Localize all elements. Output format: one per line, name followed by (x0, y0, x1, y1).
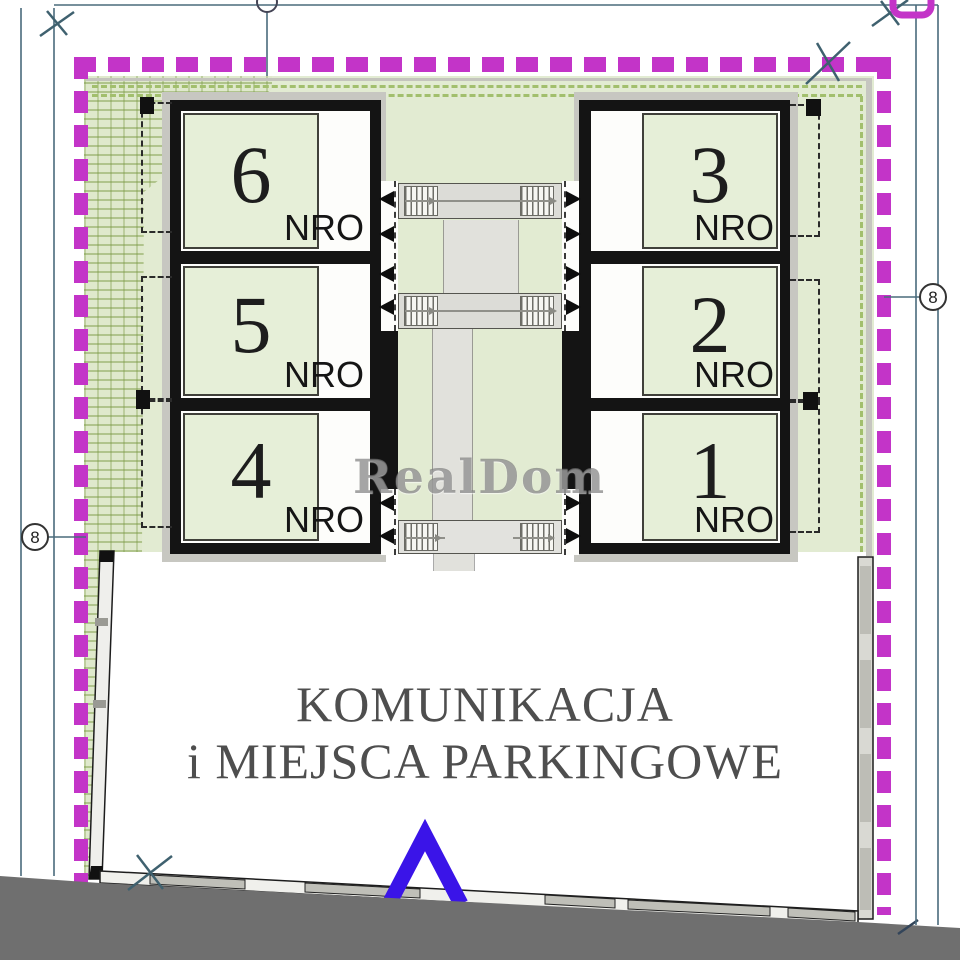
axis-bubble-label: 8 (928, 288, 937, 307)
axis-bubble-label: 8 (30, 528, 39, 547)
survey-marker-circle (257, 0, 277, 12)
site-plan: 6 NRO 5 NRO 4 NRO 3 NRO 2 (0, 0, 960, 960)
dimension-layer: 8 8 (0, 0, 960, 960)
dimension-tick (47, 11, 67, 35)
dimension-tick (817, 43, 839, 81)
dimension-tick (137, 855, 163, 889)
